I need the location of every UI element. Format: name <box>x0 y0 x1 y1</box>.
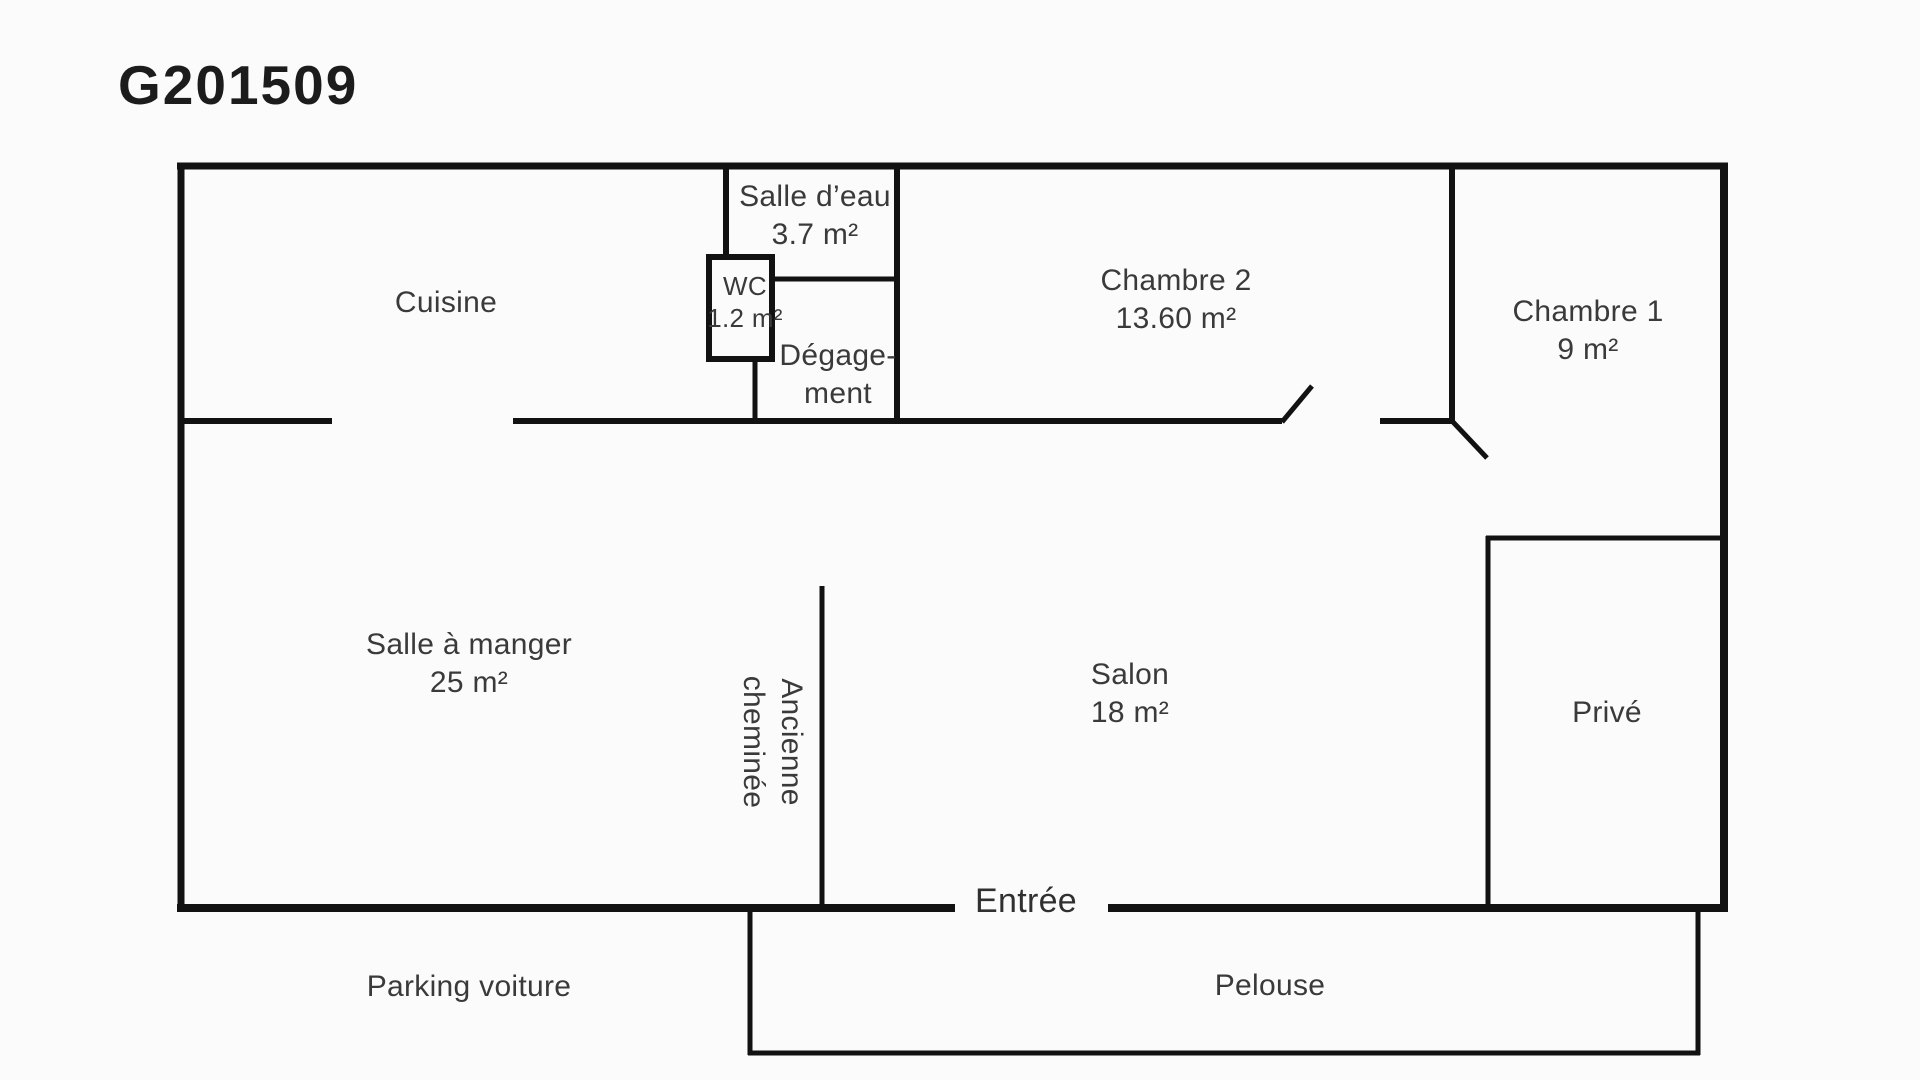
room-label-salle-deau: Salle d’eau 3.7 m² <box>739 178 891 254</box>
room-name: Salle d’eau <box>739 178 891 216</box>
room-label-cuisine: Cuisine <box>395 284 497 322</box>
room-area: 25 m² <box>366 664 572 702</box>
room-name: Salle à manger <box>366 626 572 664</box>
exterior-label-pelouse: Pelouse <box>1215 967 1326 1005</box>
floor-plan-page: G201509 Cuisine Salle d’eau 3.7 m² WC 1.… <box>0 0 1920 1080</box>
room-label-prive: Privé <box>1572 694 1642 732</box>
room-label-ancienne-cheminee: Ancienne cheminée <box>734 676 810 808</box>
chambre1-door-leaf <box>1453 422 1487 458</box>
room-area: 9 m² <box>1512 331 1663 369</box>
room-name: WC <box>707 270 782 302</box>
room-label-chambre1: Chambre 1 9 m² <box>1512 293 1663 369</box>
floor-plan-drawing <box>0 0 1920 1080</box>
room-area: 18 m² <box>1091 694 1169 732</box>
room-name: Chambre 2 <box>1100 262 1251 300</box>
room-area: 13.60 m² <box>1100 300 1251 338</box>
room-name: Salon <box>1091 656 1169 694</box>
room-label-salon: Salon 18 m² <box>1091 656 1169 732</box>
room-area: 1.2 m² <box>707 302 782 334</box>
room-name-line1: Dégage- <box>779 337 896 375</box>
room-label-entree: Entrée <box>975 882 1077 920</box>
room-label-salle-a-manger: Salle à manger 25 m² <box>366 626 572 702</box>
page-title: G201509 <box>118 58 358 113</box>
room-name-line2: cheminée <box>734 676 772 808</box>
room-name-line2: ment <box>779 375 896 413</box>
room-label-degagement: Dégage- ment <box>779 337 896 413</box>
room-label-wc: WC 1.2 m² <box>707 270 782 334</box>
room-name: Chambre 1 <box>1512 293 1663 331</box>
chambre2-door-leaf <box>1282 386 1312 422</box>
room-area: 3.7 m² <box>739 216 891 254</box>
room-name-line1: Ancienne <box>772 676 810 808</box>
exterior-label-parking: Parking voiture <box>367 968 572 1006</box>
room-label-chambre2: Chambre 2 13.60 m² <box>1100 262 1251 338</box>
